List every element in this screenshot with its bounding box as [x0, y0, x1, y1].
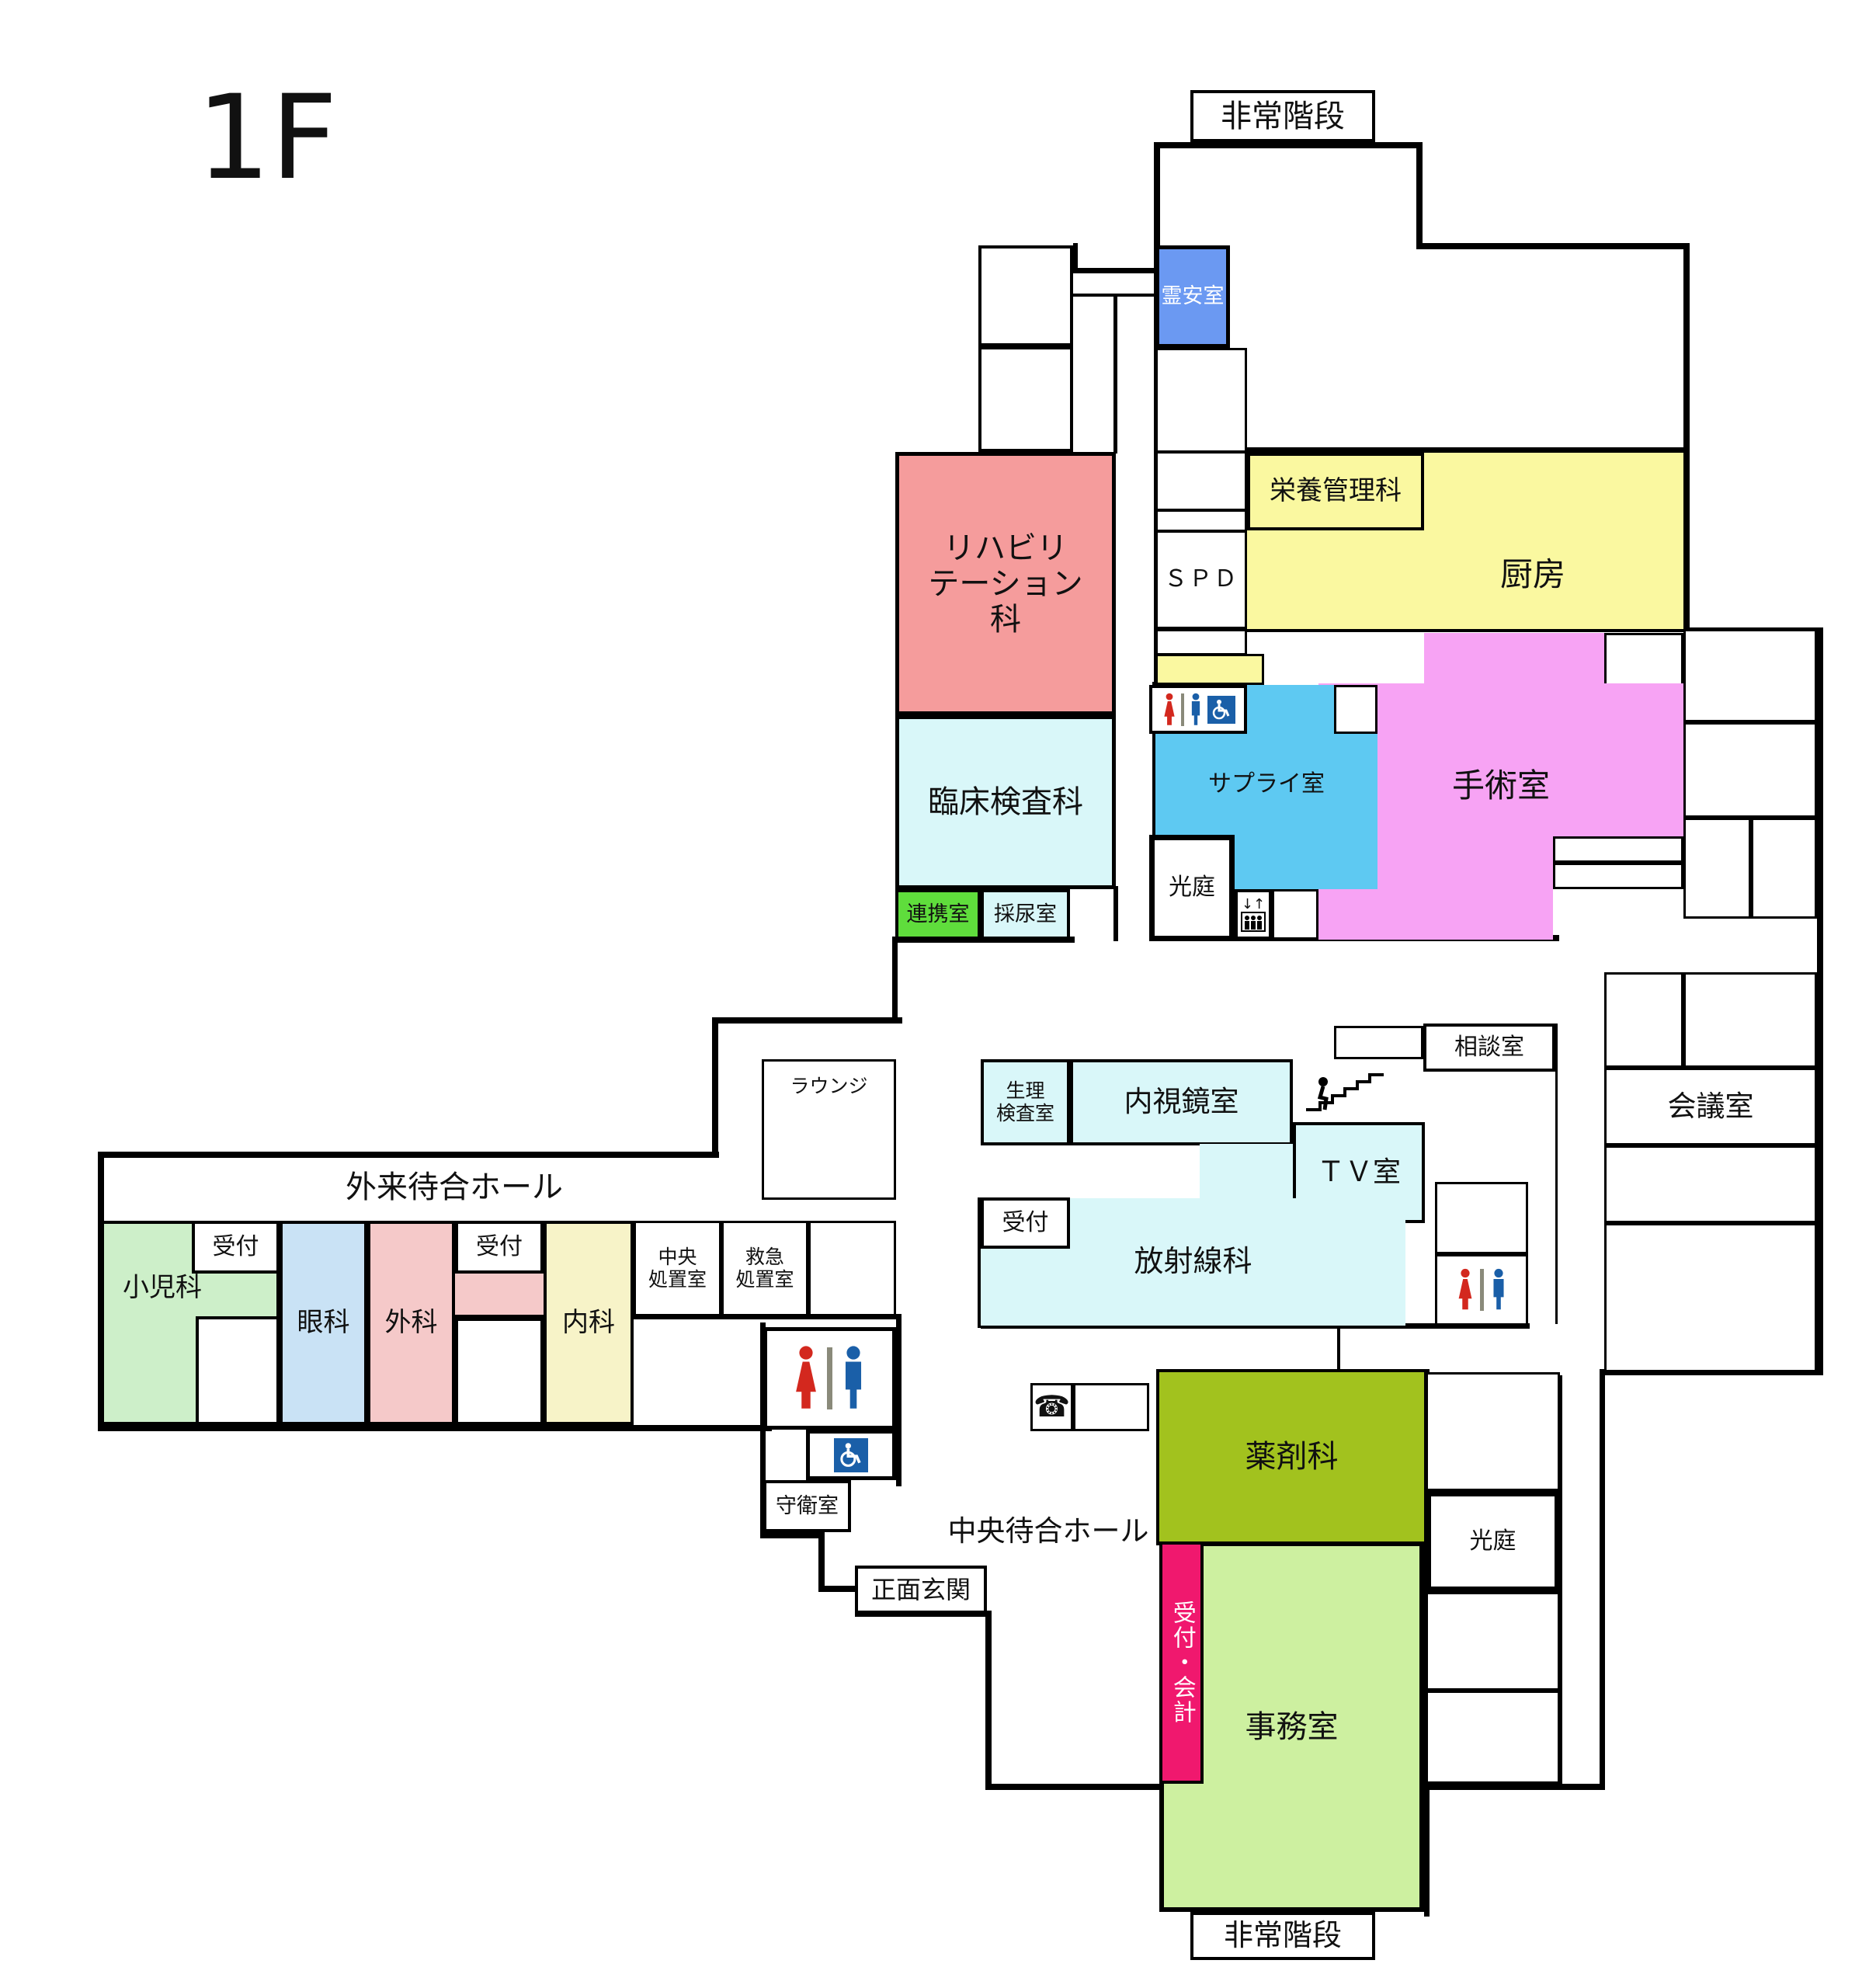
wall — [1817, 627, 1823, 1375]
room-small-2 — [1155, 451, 1247, 511]
wall — [1113, 297, 1117, 454]
room-label: 受付 — [213, 1234, 259, 1261]
room-east-8 — [1604, 1223, 1817, 1372]
wall — [1073, 268, 1159, 273]
phone-icon: ☎ — [1034, 1390, 1070, 1424]
room-lounge: ラウンジ — [762, 1059, 896, 1200]
room-stair-box — [1334, 1026, 1423, 1059]
room-emergency-treatment: 救急 処置室 — [721, 1221, 808, 1316]
man-icon — [1489, 1268, 1509, 1312]
room-label: 事務室 — [1245, 1709, 1339, 1745]
room-label: 光庭 — [1169, 874, 1215, 902]
room-label: 正面玄関 — [871, 1576, 971, 1604]
room-radiology-reception: 受付 — [981, 1197, 1070, 1249]
phone-booth: ☎ — [1030, 1383, 1073, 1431]
room-label: 受付・会計 — [1168, 1600, 1195, 1725]
room-label: 非常階段 — [1224, 1919, 1342, 1953]
room-label: 内視鏡室 — [1124, 1086, 1239, 1119]
divider — [827, 1347, 832, 1409]
room-label: 栄養管理科 — [1270, 476, 1402, 506]
room-label: 光庭 — [1470, 1528, 1516, 1555]
man-icon — [1187, 693, 1204, 727]
room-label: 会議室 — [1668, 1090, 1754, 1124]
wall — [1560, 1375, 1562, 1784]
toilet-main — [763, 1327, 896, 1430]
divider — [1480, 1269, 1484, 1311]
room-reception-accounting: 受付・会計 — [1159, 1541, 1204, 1784]
surgery-ext — [455, 1274, 544, 1318]
wall — [1337, 1326, 1340, 1374]
surgery-pocket — [455, 1318, 544, 1425]
central-hall-label: 中央待合ホール — [893, 1514, 1204, 1548]
room-east-1 — [1683, 629, 1817, 722]
wall — [1600, 1369, 1605, 1790]
room-label: ＴＶ室 — [1317, 1156, 1401, 1188]
room-label: ＳＰＤ — [1164, 566, 1239, 593]
wall — [1113, 886, 1118, 941]
room-label: 手術室 — [1452, 767, 1550, 805]
wall — [712, 1017, 718, 1158]
room-or-cut-2 — [1553, 863, 1683, 889]
room-nutrition: 栄養管理科 — [1247, 453, 1424, 530]
stairs-person-icon — [1303, 1068, 1388, 1113]
kitchen-leg — [1155, 654, 1264, 685]
room-small-3 — [1155, 509, 1247, 532]
room-operating-top — [1424, 633, 1604, 687]
room-east-5 — [1604, 972, 1683, 1068]
room-endoscopy: 内視鏡室 — [1070, 1059, 1293, 1145]
room-east-4 — [1751, 818, 1817, 919]
room-label: 小児科 — [123, 1272, 202, 1304]
room-spd: ＳＰＤ — [1155, 530, 1247, 629]
page-title: 1F — [196, 68, 338, 208]
outpatient-hall-label: 外来待合ホール — [248, 1169, 660, 1206]
room-east-b2 — [1426, 1592, 1560, 1691]
room-consultation: 相談室 — [1423, 1024, 1555, 1072]
room-east-6 — [1683, 972, 1817, 1068]
toilet-east — [1435, 1254, 1528, 1326]
room-label: サプライ室 — [1208, 771, 1325, 798]
wall — [1683, 243, 1690, 634]
room-notch — [1334, 685, 1377, 734]
room-physiology-lab: 生理 検査室 — [981, 1059, 1070, 1145]
room-label: ラウンジ — [790, 1076, 867, 1098]
toilet-wheelchair — [806, 1430, 896, 1480]
room-central-treatment: 中央 処置室 — [634, 1221, 721, 1316]
wheelchair-icon — [1207, 696, 1235, 724]
elevator: ↓↑ — [1235, 889, 1272, 940]
man-icon — [839, 1345, 868, 1412]
pediatrics-pocket — [196, 1316, 280, 1425]
wall — [1416, 142, 1423, 249]
room-label: 守衛室 — [776, 1494, 839, 1518]
room-connector-1 — [978, 245, 1073, 346]
wall — [818, 1532, 825, 1592]
room-label: 相談室 — [1454, 1034, 1524, 1062]
room-guard: 守衛室 — [763, 1480, 851, 1532]
room-light-court-1: 光庭 — [1149, 835, 1235, 941]
wall — [1424, 1784, 1605, 1790]
floor-plan-1f: 1F 非常階段 霊安室 — [0, 0, 1876, 1988]
room-label: リハビリ テーション 科 — [928, 530, 1082, 638]
wall — [760, 1532, 825, 1538]
room-clinical-lab: 臨床検査科 — [895, 715, 1116, 889]
room-ophthalmology: 眼科 — [280, 1221, 367, 1425]
room-small-1 — [1155, 348, 1247, 453]
room-label: 厨房 — [1500, 555, 1565, 594]
radiology-neck — [1200, 1144, 1293, 1200]
room-internal-medicine: 内科 — [544, 1221, 634, 1425]
wall — [712, 1017, 902, 1024]
room-east-2 — [1683, 722, 1817, 818]
room-emergency-stairs-bottom: 非常階段 — [1190, 1912, 1375, 1960]
wall — [1154, 142, 1423, 148]
wall — [985, 1611, 992, 1790]
wall — [896, 1314, 902, 1486]
room-label: 連携室 — [907, 902, 970, 926]
room-label: 非常階段 — [1221, 99, 1345, 134]
room-label: 霊安室 — [1162, 284, 1225, 308]
phone-booth-2 — [1073, 1383, 1149, 1431]
room-small-4 — [1155, 629, 1247, 655]
woman-icon — [791, 1345, 821, 1412]
wall — [985, 1784, 1166, 1790]
room-supply: サプライ室 — [1155, 734, 1377, 835]
room-label: 内科 — [562, 1308, 615, 1338]
room-or-cut-1 — [1553, 836, 1683, 863]
room-label: 受付 — [1002, 1210, 1049, 1237]
room-surgery: 外科 — [367, 1221, 455, 1425]
room-label: 受付 — [476, 1234, 523, 1261]
room-label: 薬剤科 — [1245, 1439, 1339, 1475]
room-cell — [1272, 889, 1318, 940]
room-rehabilitation: リハビリ テーション 科 — [895, 452, 1116, 715]
room-label: 救急 処置室 — [735, 1246, 794, 1291]
room-supply-a — [1247, 685, 1334, 734]
divider — [1181, 693, 1184, 726]
room-connector-2 — [978, 346, 1073, 452]
room-emergency-stairs-top: 非常階段 — [1190, 90, 1375, 142]
room-light-court-2: 光庭 — [1426, 1491, 1560, 1592]
wall — [1073, 243, 1078, 273]
room-east-b3 — [1426, 1691, 1560, 1784]
room-reception-1: 受付 — [192, 1221, 280, 1274]
elevator-icon: ↓↑ — [1241, 898, 1266, 932]
wall — [1555, 1024, 1558, 1324]
room-label: 生理 検査室 — [996, 1080, 1054, 1125]
room-renkei: 連携室 — [895, 889, 981, 940]
room-urine: 採尿室 — [981, 889, 1070, 940]
room-hall-side — [808, 1221, 896, 1316]
room-conference: 会議室 — [1604, 1068, 1817, 1145]
wheelchair-icon — [834, 1438, 868, 1472]
wall — [892, 937, 898, 1024]
wall — [1416, 243, 1690, 249]
room-label: 外科 — [385, 1308, 438, 1338]
room-east-7 — [1604, 1145, 1817, 1223]
room-label: 中央 処置室 — [648, 1246, 707, 1291]
room-main-entrance: 正面玄関 — [855, 1566, 987, 1614]
room-label: 眼科 — [297, 1308, 350, 1338]
wall — [98, 1152, 719, 1158]
room-pharmacy: 薬剤科 — [1159, 1372, 1424, 1541]
toilet-supply — [1149, 685, 1247, 734]
room-operating-bottom — [1318, 889, 1553, 940]
woman-icon — [1161, 693, 1178, 727]
room-east-3 — [1683, 818, 1751, 919]
room-label: 放射線科 — [1134, 1245, 1252, 1279]
wall — [98, 1425, 772, 1431]
room-label: 臨床検査科 — [928, 784, 1083, 820]
room-east-b1 — [1426, 1372, 1560, 1491]
woman-icon — [1455, 1268, 1475, 1312]
room-reception-2: 受付 — [455, 1221, 544, 1274]
room-label: 採尿室 — [994, 902, 1057, 926]
room-mortuary: 霊安室 — [1155, 245, 1230, 348]
room-above-toilet — [1435, 1182, 1528, 1254]
